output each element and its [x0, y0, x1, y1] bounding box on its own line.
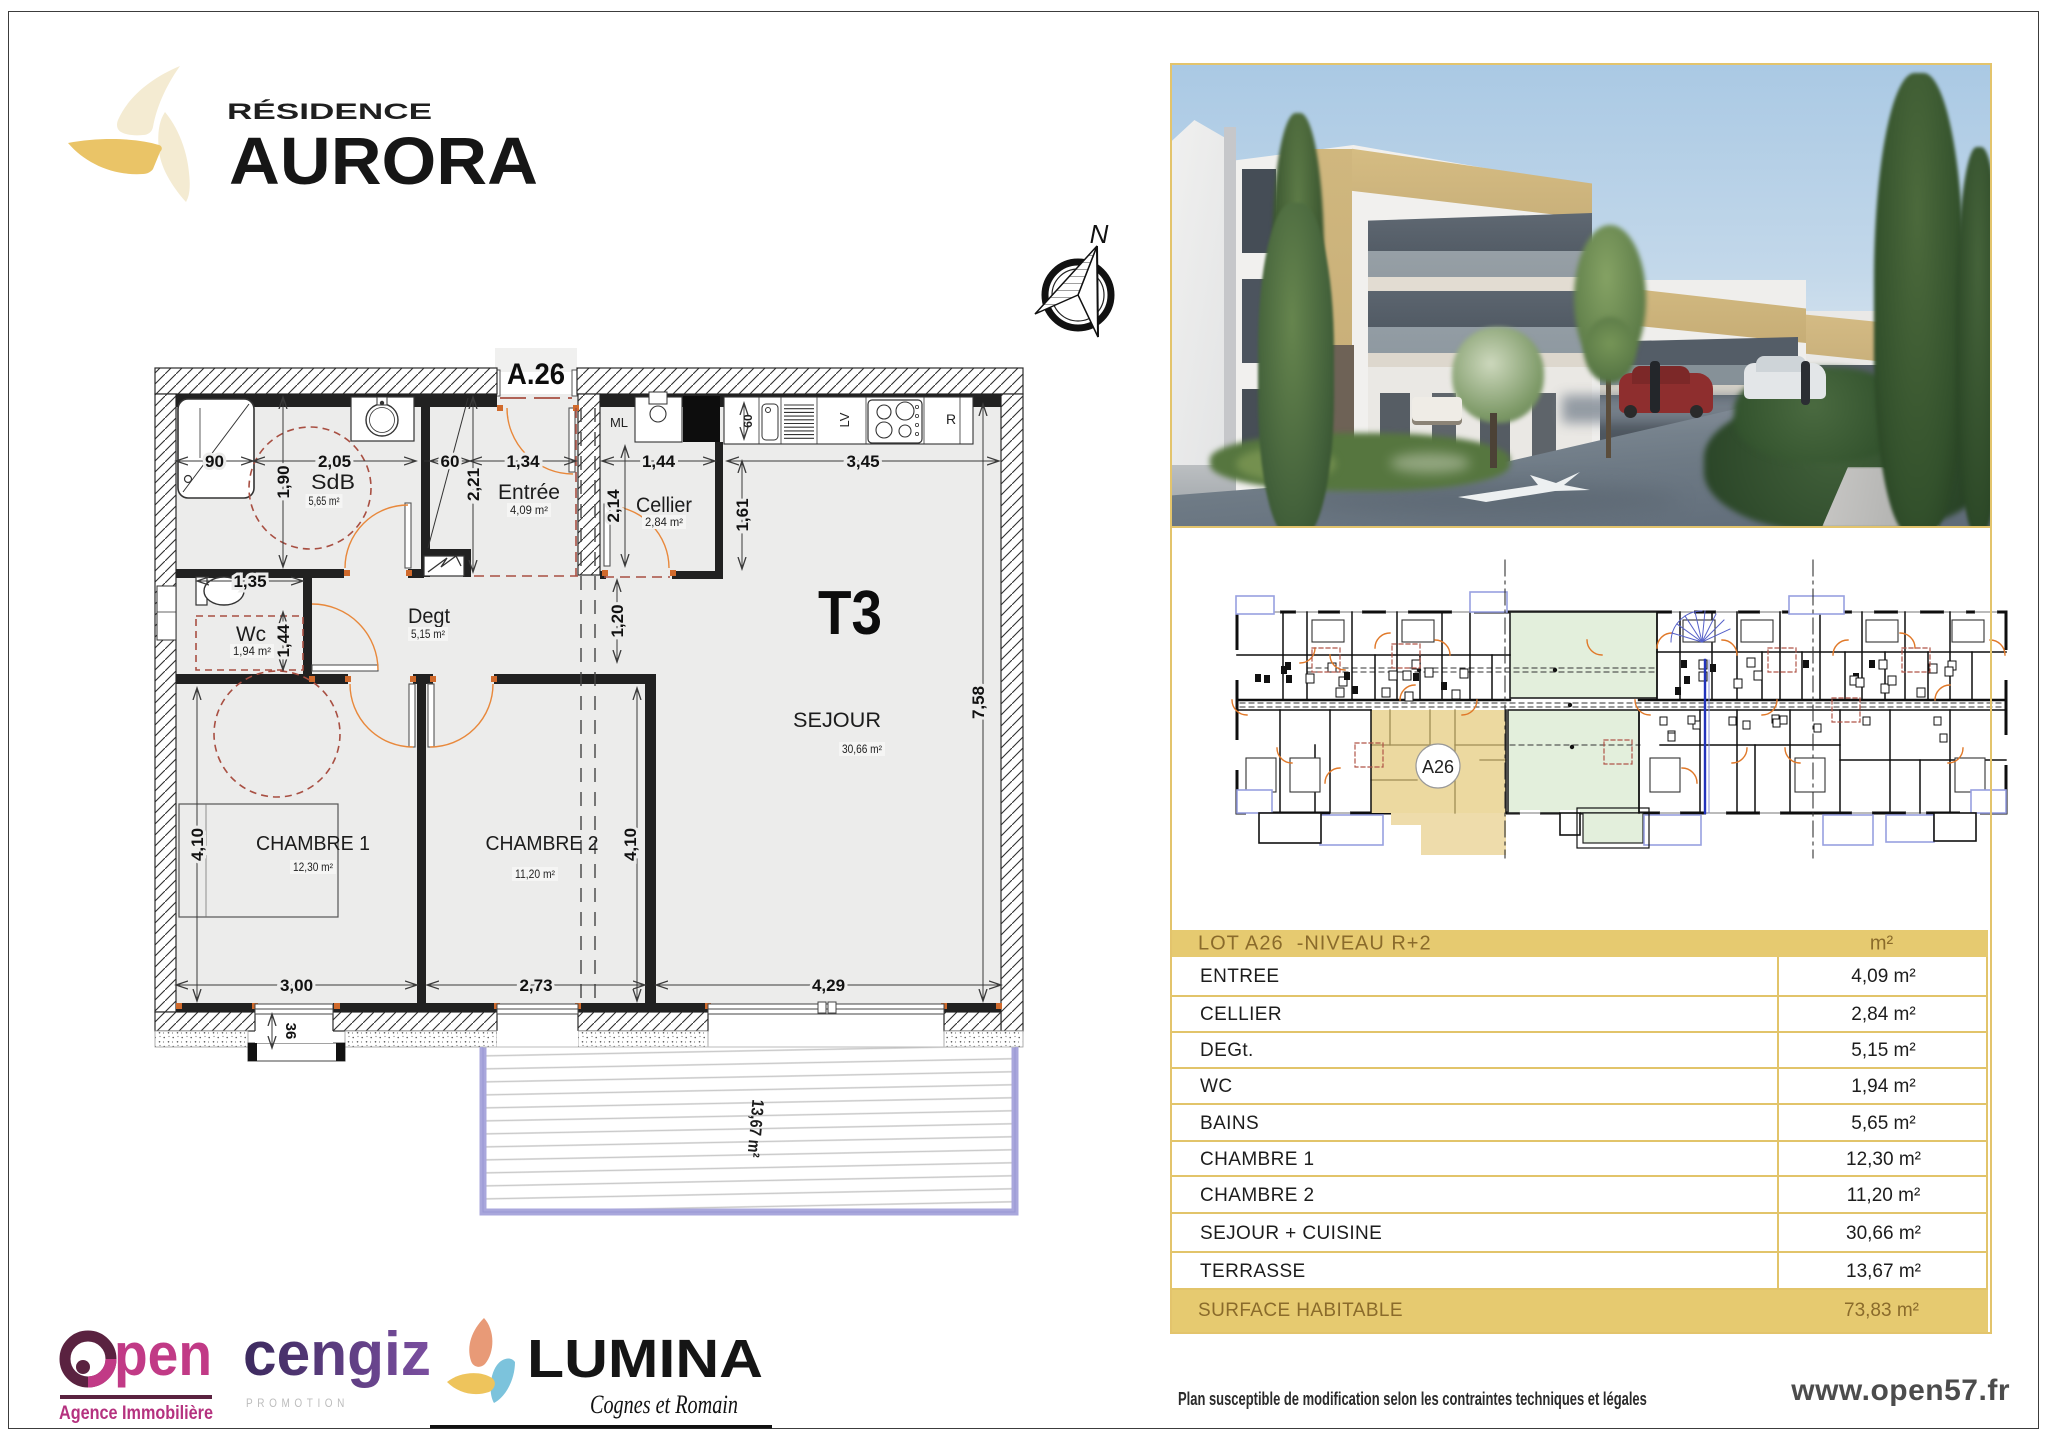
svg-text:SEJOUR: SEJOUR: [793, 709, 881, 732]
svg-text:1,61: 1,61: [733, 498, 752, 531]
svg-text:Agence Immobilière: Agence Immobilière: [59, 1403, 213, 1424]
svg-text:1,34: 1,34: [506, 452, 540, 471]
svg-text:R: R: [946, 411, 956, 427]
svg-text:N: N: [1090, 219, 1109, 249]
svg-text:Degt: Degt: [408, 605, 450, 628]
svg-text:3,45: 3,45: [846, 452, 879, 471]
svg-text:5,15 m²: 5,15 m²: [411, 629, 445, 641]
svg-text:1,44: 1,44: [642, 452, 676, 471]
svg-text:4,10: 4,10: [621, 828, 640, 861]
svg-text:pen: pen: [114, 1321, 212, 1388]
svg-text:LUMINA: LUMINA: [527, 1329, 763, 1389]
svg-text:ML: ML: [610, 415, 628, 430]
svg-text:2,05: 2,05: [318, 452, 351, 471]
svg-text:2,84 m²: 2,84 m²: [645, 517, 683, 529]
svg-text:12,30 m²: 12,30 m²: [293, 862, 333, 874]
svg-text:PROMOTION: PROMOTION: [246, 1396, 349, 1410]
svg-text:CHAMBRE 1: CHAMBRE 1: [256, 833, 370, 855]
svg-text:4,09 m²: 4,09 m²: [510, 505, 548, 517]
svg-text:CHAMBRE 2: CHAMBRE 2: [486, 833, 599, 855]
svg-text:2,73: 2,73: [519, 976, 552, 995]
svg-text:1,20: 1,20: [608, 604, 627, 637]
svg-text:7,58: 7,58: [969, 686, 988, 719]
svg-text:Cognes et Romain: Cognes et Romain: [590, 1390, 738, 1419]
svg-text:11,20 m²: 11,20 m²: [515, 869, 555, 881]
svg-text:4,10: 4,10: [188, 828, 207, 861]
svg-text:3,00: 3,00: [280, 976, 313, 995]
svg-text:1,35: 1,35: [233, 572, 266, 591]
svg-text:Cellier: Cellier: [636, 494, 692, 517]
svg-text:1,44: 1,44: [274, 624, 293, 658]
svg-text:A.26: A.26: [507, 358, 565, 391]
svg-text:LV: LV: [837, 412, 852, 427]
svg-text:60: 60: [741, 414, 755, 428]
svg-text:Entrée: Entrée: [498, 481, 560, 504]
svg-text:2,21: 2,21: [464, 468, 483, 501]
svg-text:4,29: 4,29: [812, 976, 845, 995]
svg-text:SdB: SdB: [311, 471, 355, 494]
svg-text:cengiz: cengiz: [243, 1320, 431, 1389]
svg-text:1,94 m²: 1,94 m²: [233, 646, 271, 658]
svg-text:T3: T3: [818, 579, 882, 648]
svg-text:2,14: 2,14: [604, 489, 623, 523]
svg-text:90: 90: [205, 452, 224, 471]
svg-text:60: 60: [441, 452, 460, 471]
svg-text:5,65 m²: 5,65 m²: [309, 496, 340, 508]
svg-text:1,90: 1,90: [274, 465, 293, 498]
svg-text:Wc: Wc: [236, 623, 266, 646]
svg-text:36: 36: [282, 1023, 299, 1040]
svg-text:30,66 m²: 30,66 m²: [842, 744, 882, 756]
svg-text:A26: A26: [1422, 757, 1454, 777]
